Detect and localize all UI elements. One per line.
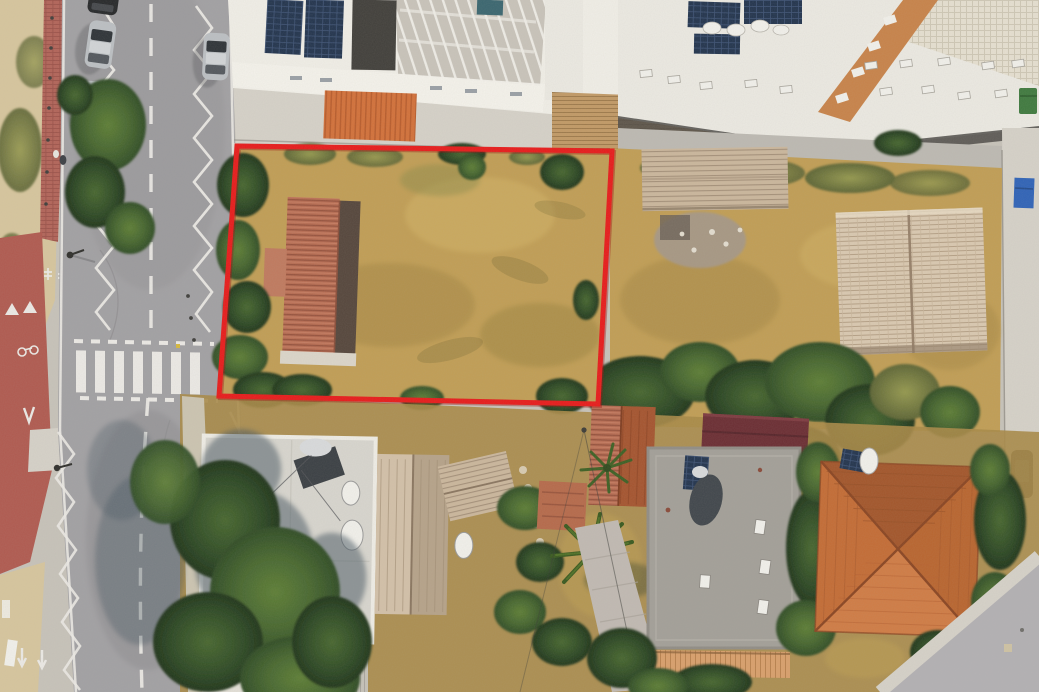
scene-canvas: [0, 0, 1039, 692]
noise-overlay: [0, 0, 1039, 692]
aerial-photograph: [0, 0, 1039, 692]
